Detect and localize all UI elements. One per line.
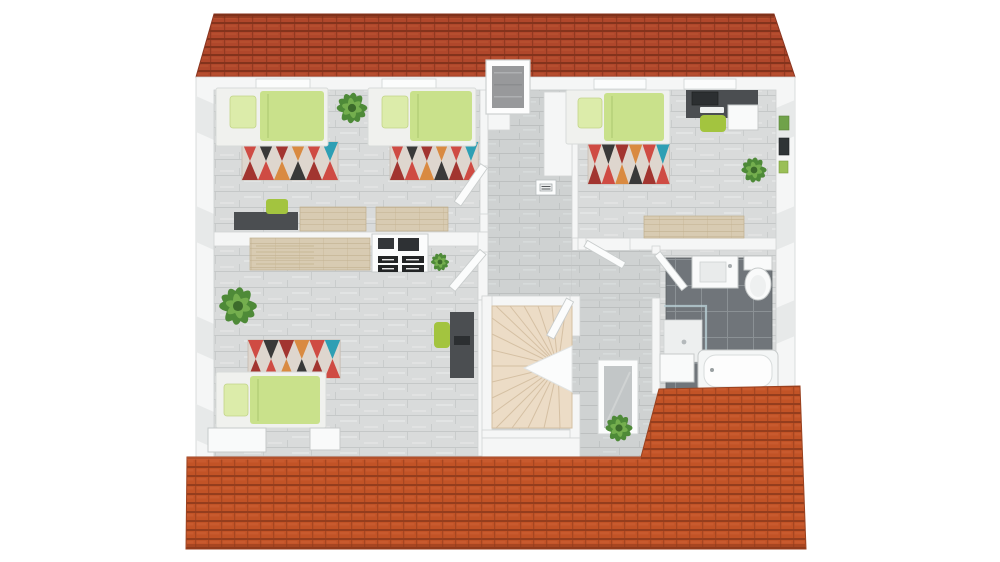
stairwell-wall-south (482, 430, 580, 438)
wall-topright-bottom-west (578, 238, 586, 250)
window-sill (594, 79, 646, 89)
wall-art (779, 116, 789, 173)
desk-chair (700, 115, 726, 132)
roof-ridge (214, 14, 774, 18)
roof-eave-highlight (187, 457, 641, 460)
bathtub (698, 350, 778, 392)
cabinet (728, 105, 758, 130)
bench (310, 428, 340, 450)
duvet (604, 93, 664, 141)
single-bed (216, 88, 328, 146)
rug (390, 142, 478, 180)
wooden-counter (250, 238, 370, 270)
chimney (486, 60, 530, 114)
roof-bottom-edge (187, 544, 805, 549)
rug (242, 142, 338, 180)
window-sill (684, 79, 736, 89)
keyboard (700, 107, 724, 113)
desk (234, 212, 298, 230)
floor-plan-canvas (0, 0, 1000, 562)
wall-thermostat (536, 180, 556, 195)
attic-wall-shading-right (776, 100, 795, 344)
duvet (410, 91, 472, 141)
skylight (598, 360, 638, 442)
desk-chair (266, 199, 288, 214)
single-bed (216, 372, 326, 428)
toilet (744, 256, 772, 300)
bench (208, 428, 266, 452)
sideboard (376, 207, 448, 231)
drawer-unit (372, 234, 428, 272)
wall-band-below-stairwell (482, 438, 580, 457)
duvet (260, 91, 324, 141)
wall-bathroom-west-lower (652, 298, 660, 394)
sideboard (300, 207, 366, 231)
wall-hall-west-lower (480, 214, 488, 232)
stairwell-wall-west (482, 296, 492, 438)
pillow (230, 96, 256, 128)
sideboard (644, 216, 744, 238)
pillow (224, 384, 248, 416)
washbasin (692, 256, 738, 288)
desk-chair (434, 322, 450, 348)
single-bed (566, 90, 670, 144)
wall-bottomleft-east-upper (478, 232, 488, 252)
floor-plan-render: 3D top-down floor plan render of an atti… (0, 0, 1000, 562)
single-bed (368, 88, 476, 146)
rug (588, 144, 670, 184)
low-wall (660, 354, 694, 382)
pillow (578, 98, 602, 128)
duvet (250, 376, 320, 424)
pillow (382, 96, 408, 128)
monitor (454, 336, 470, 345)
monitor (692, 92, 718, 105)
